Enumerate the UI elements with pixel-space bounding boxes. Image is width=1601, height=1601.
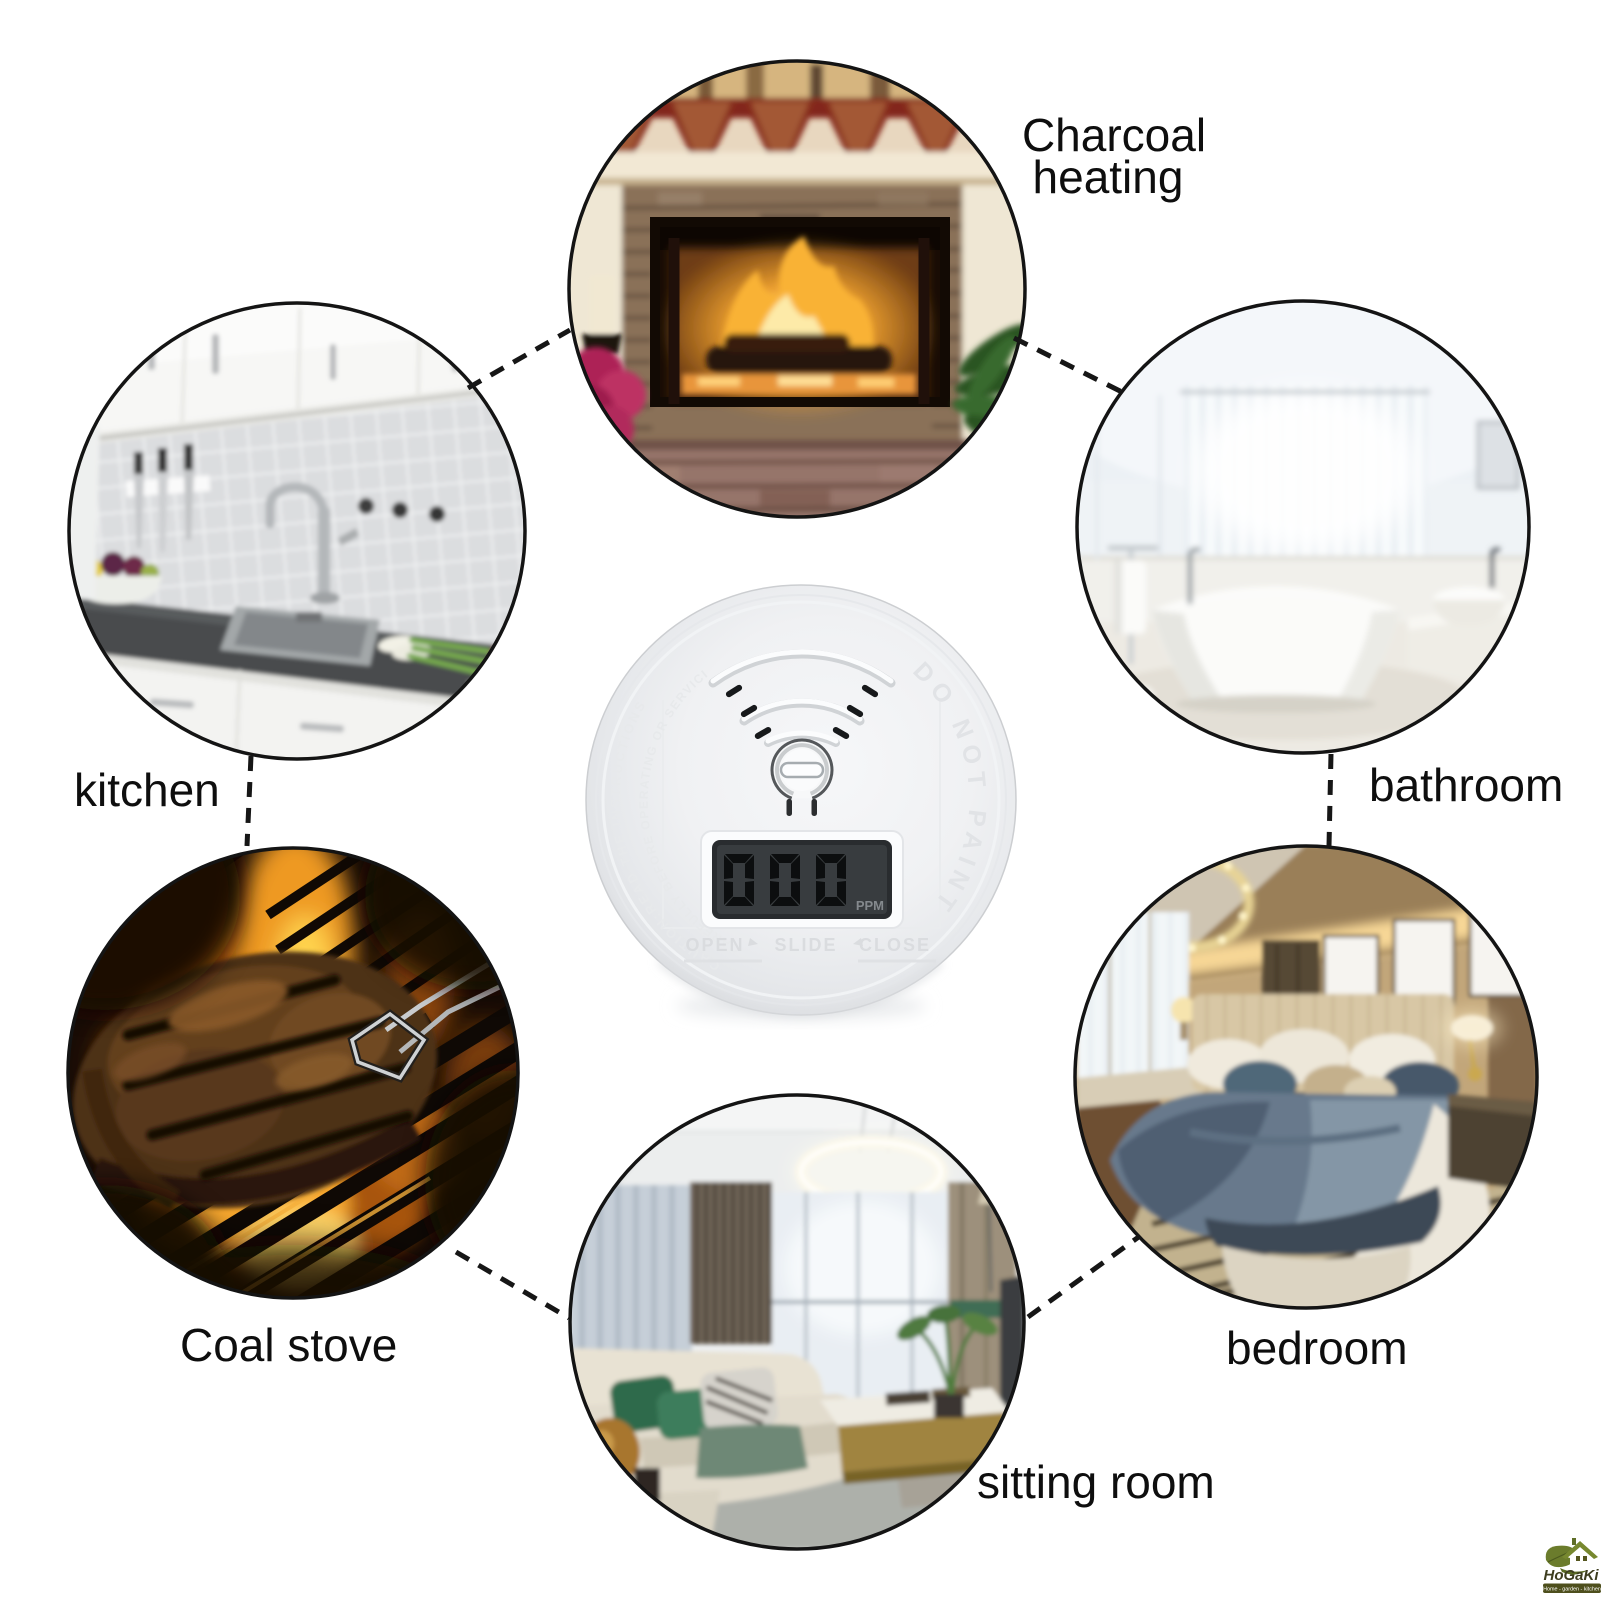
svg-text:kitchen: kitchen <box>74 764 220 816</box>
svg-text:Home - garden - kitchen: Home - garden - kitchen <box>1543 1587 1601 1593</box>
svg-text:HoGaKi: HoGaKi <box>1543 1567 1599 1584</box>
svg-text:heating: heating <box>1033 151 1184 203</box>
svg-text:sitting room: sitting room <box>977 1456 1215 1508</box>
svg-text:Coal stove: Coal stove <box>180 1319 397 1371</box>
svg-text:bedroom: bedroom <box>1226 1322 1408 1374</box>
svg-text:OPEN: OPEN <box>685 935 744 955</box>
svg-text:bathroom: bathroom <box>1369 759 1563 811</box>
svg-text:SLIDE: SLIDE <box>774 935 837 955</box>
svg-text:PPM: PPM <box>856 898 884 913</box>
svg-text:CLOSE: CLOSE <box>859 935 931 955</box>
